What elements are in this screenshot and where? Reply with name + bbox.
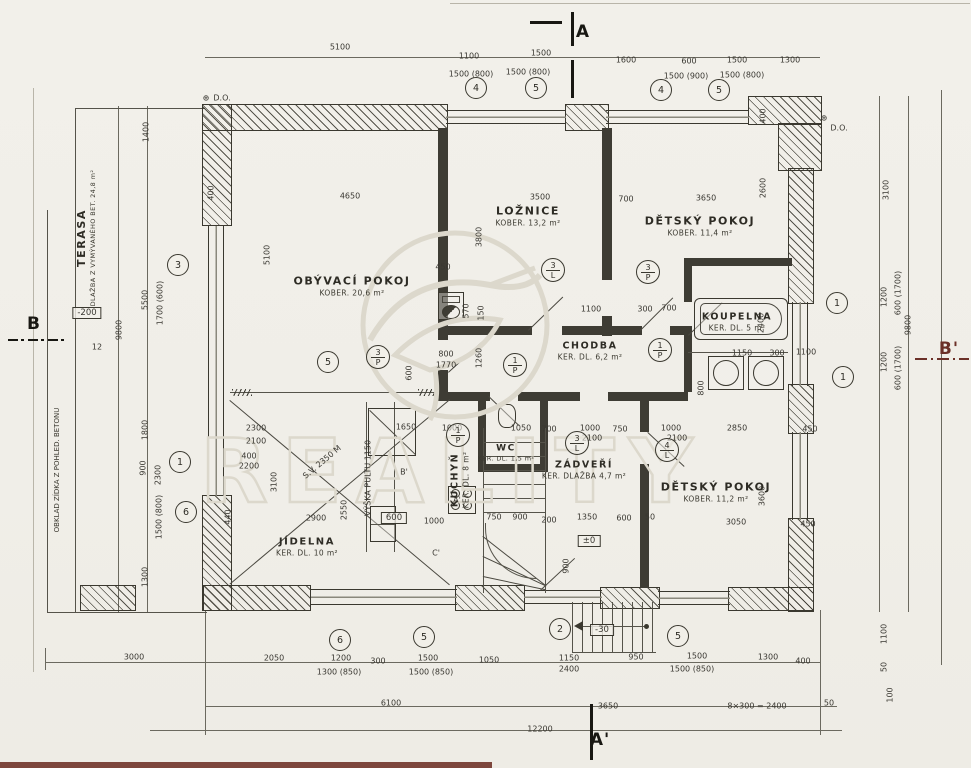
dimension-label: 2300 [246,424,266,433]
dimension-label: 1800 [141,420,150,440]
dimension-label: 450 [802,425,817,434]
reference-circle: 4 [650,79,672,101]
dimension-label: 5100 [330,43,350,52]
level-box: -200 [72,307,101,319]
dimension-label: 1100 [880,624,889,644]
dimension-label: 1400 [142,122,151,142]
dimension-label: 400 [207,185,216,200]
dimension-label: 1050 [511,424,531,433]
dimension-label: 450 [800,520,815,529]
room-label-koupelna: KOUPELNA KER. DL. 5 m² [702,312,772,333]
section-marker-a: A [576,22,590,42]
dimension-label: 3800 [475,227,484,247]
dimension-label: 1050 [479,656,499,665]
dimension-label: 300 [370,657,385,666]
room-label-chodba: CHODBA KER. DL. 6,2 m² [558,341,623,362]
level-box: 600 [381,512,407,524]
dimension-label: 1500 (800) [155,495,164,539]
dimension-label: B' [400,468,408,477]
dimension-label: 1100 [581,305,601,314]
dimension-label: 700 [661,304,676,313]
dimension-label: 600 [616,514,631,523]
dimension-label: 5100 [263,245,272,265]
dimension-label: 1200 [331,654,351,663]
dimension-label: 1300 [780,56,800,65]
dimension-label: 900 [512,513,527,522]
reference-circle: 1 [169,451,191,473]
dimension-label: 2550 [340,500,349,520]
floor-plan-sheet: REALITY [0,0,971,768]
dimension-label: 12 [92,343,102,352]
reference-circle: 1 [826,292,848,314]
dimension-label: 1000 [580,424,600,433]
dimension-label: D.O. [830,124,847,133]
dimension-label: 12200 [527,725,552,734]
dimension-label: ⊕ [203,94,210,103]
dimension-label: D.O. [213,94,230,103]
dimension-label: 3500 [530,193,550,202]
dimension-label: 50 [880,662,889,672]
room-label-wc: WC KER. DL. 1,5 m² [478,444,535,463]
door-reference-circle: 3 P [366,345,390,369]
note-obklad: OBKLAD ZÍDKA Z POHLED. BETONU [53,408,61,533]
section-marker-a-prime: A' [590,730,610,750]
dimension-label: 800 [438,350,453,359]
section-marker-b: B [27,314,41,334]
reference-circle: 5 [667,625,689,647]
dimension-label: 1650 [396,423,416,432]
dimension-label: 1500 (800) [720,71,764,80]
reference-circle: 6 [175,501,197,523]
dimension-label: 1300 (850) [317,668,361,677]
dimension-label: 300 [637,305,652,314]
reference-circle: 5 [413,626,435,648]
dimension-label: 8×300 = 2400 [727,702,786,711]
dimension-label: 1500 (850) [409,668,453,677]
dimension-label: 1350 [577,513,597,522]
dimension-label: 1150 [559,654,579,663]
dimension-label: 50 [824,699,834,708]
dimension-label: 1300 [758,653,778,662]
room-label-kuchyn: KUCHYŇ KER. DL. 8 m² [450,452,471,509]
dimension-label: 1700 (600) [156,281,165,325]
dimension-label: 1000 [424,517,444,526]
dimension-label: 1200 [880,352,889,372]
dimension-label: 9800 [115,320,124,340]
dimension-label: 1000 [661,424,681,433]
section-marker-b-prime: B' [939,339,959,359]
dimension-label: 1500 [687,652,707,661]
dimension-label: 1500 [418,654,438,663]
dimension-label: 600 (1700) [894,346,903,390]
dimension-label: 300 [769,349,784,358]
dimension-label: 1600 [616,56,636,65]
watermark-text: REALITY [200,420,780,523]
level-box: -30 [590,624,614,636]
dimension-label: 1100 [796,348,816,357]
dimension-label: 400 [241,452,256,461]
dimension-label: 2400 [559,665,579,674]
dimension-label: 3000 [124,653,144,662]
dimension-label: 3100 [882,180,891,200]
dimension-label: 1770 [436,361,456,370]
dimension-label: 1500 [531,49,551,58]
dimension-label: 900 [562,558,571,573]
dimension-label: 6100 [381,699,401,708]
room-label-detsky-pokoj-2: DĚTSKÝ POKOJ KOBER. 11,2 m² [661,481,771,504]
dimension-label: 1500 [727,56,747,65]
door-reference-circle: 3 P [636,260,660,284]
dimension-label: 1200 [880,287,889,307]
dimension-label: 900 [139,460,148,475]
dimension-label: 750 [612,425,627,434]
door-reference-circle: 3 L [565,431,589,455]
dimension-label: C' [432,549,440,558]
level-box: ±0 [578,535,601,547]
dimension-label: 1500 (800) [506,68,550,77]
dimension-label: 4650 [340,192,360,201]
dimension-label: 440 [224,509,233,524]
reference-circle: 2 [549,618,571,640]
dimension-label: 2300 [154,465,163,485]
dimension-label: 3050 [726,518,746,527]
room-label-loznice: LOŽNICE KOBER. 13,2 m² [495,205,560,228]
reference-circle: 5 [317,351,339,373]
dimension-label: 600 (1700) [894,271,903,315]
reference-circle: 3 [167,254,189,276]
dimension-label: 50 [645,513,655,522]
dimension-label: 400 [795,657,810,666]
reference-circle: 5 [525,77,547,99]
dimension-label: 2600 [759,178,768,198]
door-reference-circle: 4 L [655,438,679,462]
door-reference-circle: 1 P [648,338,672,362]
dimension-label: 1100 [459,52,479,61]
door-reference-circle: 1 P [503,353,527,377]
dimension-label: 600 [405,365,414,380]
dimension-label: 700 [618,195,633,204]
dimension-label: VÝŠKA PULTU 1150 [364,440,373,516]
dimension-label: 2050 [264,654,284,663]
dimension-label: 1260 [475,348,484,368]
dimension-label: 570 [462,303,471,318]
reference-circle: 4 [465,77,487,99]
reference-circle: 1 [832,366,854,388]
dimension-label: 9800 [904,315,913,335]
door-reference-circle: 3 L [541,258,565,282]
dimension-label: 700 [541,425,556,434]
watermark-logo-bird [340,220,570,435]
dimension-label: 100 [886,687,895,702]
room-label-terasa: TERASA DLAŽBA Z VYMÝVANÉHO BET. 24,8 m² [75,170,97,307]
room-label-zadveri: ZÁDVEŘÍ KER. DLAŽBA 4,7 m² [542,460,626,481]
reference-circle: 6 [329,629,351,651]
dimension-label: 600 [681,57,696,66]
scan-edge-artifact [0,762,492,768]
dimension-label: 400 [759,108,768,123]
dimension-label: 950 [628,653,643,662]
dimension-label: 1500 (850) [670,665,714,674]
dimension-label: 750 [486,513,501,522]
dimension-label: 3100 [270,472,279,492]
dimension-label: 2200 [239,462,259,471]
room-label-obyvaci-pokoj: OBÝVACÍ POKOJ KOBER. 20,6 m² [293,275,410,298]
dimension-label: 1150 [732,349,752,358]
dimension-label: 5500 [141,290,150,310]
dimension-label: 450 [435,263,450,272]
dimension-label: 150 [477,305,486,320]
dimension-label: 3650 [598,702,618,711]
dimension-label: ⊕ [821,114,828,123]
reference-circle: 5 [708,79,730,101]
room-label-detsky-pokoj-1: DĚTSKÝ POKOJ KOBER. 11,4 m² [645,215,755,238]
dimension-label: 800 [697,380,706,395]
dimension-label: 2850 [727,424,747,433]
dimension-label: 200 [541,516,556,525]
dimension-label: 2100 [246,437,266,446]
room-label-jidelna: JÍDELNA KER. DL. 10 m² [276,537,338,558]
dimension-label: 3650 [696,194,716,203]
door-reference-circle: 1 P [446,423,470,447]
dimension-label: 1500 (900) [664,72,708,81]
dimension-label: 1300 [141,567,150,587]
dimension-label: 2900 [306,514,326,523]
